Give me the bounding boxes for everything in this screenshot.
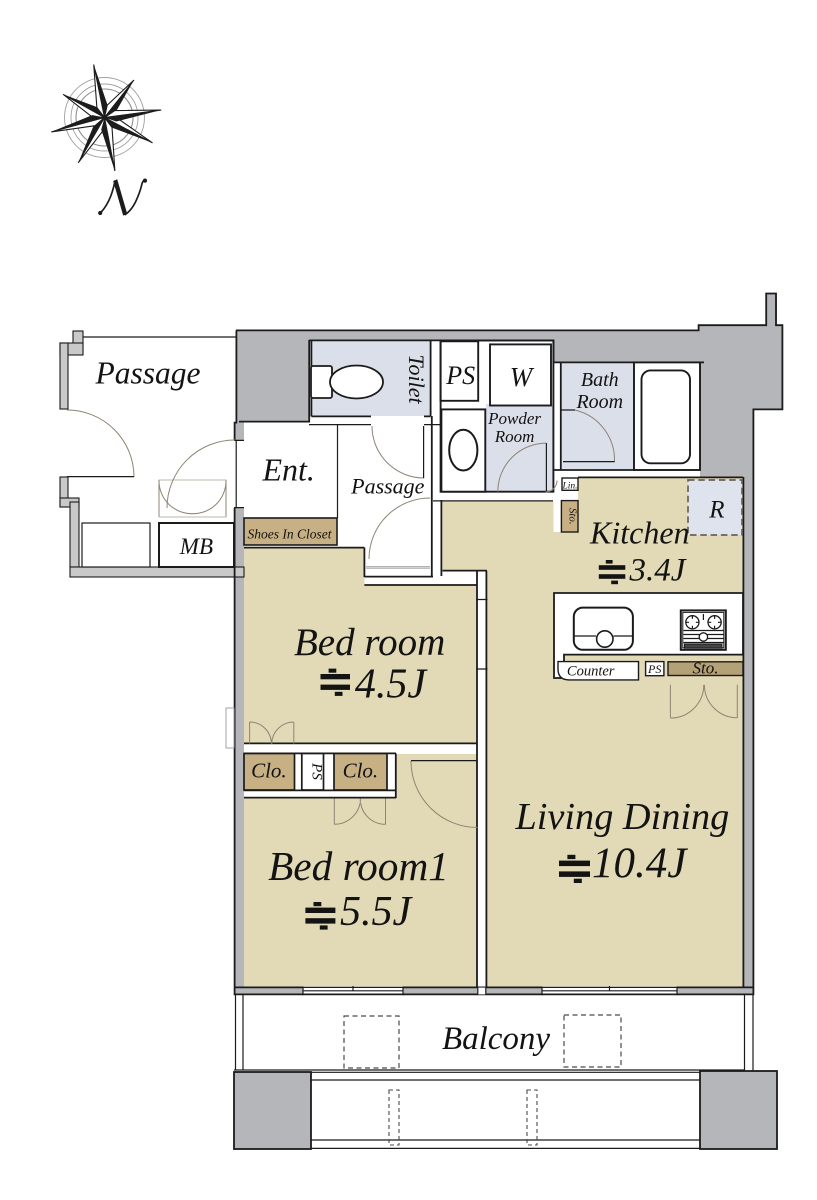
svg-text:Room: Room xyxy=(575,391,623,413)
svg-text:Clo.: Clo. xyxy=(251,759,287,783)
svg-text:Balcony: Balcony xyxy=(442,1021,550,1057)
svg-text:4.5J: 4.5J xyxy=(355,661,429,707)
svg-text:PS: PS xyxy=(445,361,475,390)
svg-text:W: W xyxy=(510,362,535,392)
svg-text:10.4J: 10.4J xyxy=(592,840,688,887)
svg-text:Living Dining: Living Dining xyxy=(514,796,729,838)
svg-text:5.5J: 5.5J xyxy=(340,889,414,935)
svg-text:3.4J: 3.4J xyxy=(629,553,687,589)
svg-text:Clo.: Clo. xyxy=(343,759,379,783)
svg-text:Bed room: Bed room xyxy=(294,621,445,664)
svg-text:Kitchen: Kitchen xyxy=(589,515,690,551)
svg-text:Powder: Powder xyxy=(487,409,541,428)
svg-text:Bath: Bath xyxy=(581,369,619,391)
svg-text:Toilet: Toilet xyxy=(404,354,429,404)
svg-text:Sto.: Sto. xyxy=(567,508,579,525)
svg-text:PS: PS xyxy=(647,662,661,676)
svg-text:R: R xyxy=(708,497,724,524)
svg-text:Counter: Counter xyxy=(567,664,615,680)
svg-text:MB: MB xyxy=(179,534,213,559)
svg-text:PS: PS xyxy=(309,762,325,780)
svg-text:Lin.: Lin. xyxy=(561,482,577,492)
svg-text:Sto.: Sto. xyxy=(693,659,719,678)
svg-text:Bed room1: Bed room1 xyxy=(268,843,449,889)
svg-text:Room: Room xyxy=(494,427,535,446)
svg-text:Passage: Passage xyxy=(350,474,425,499)
svg-text:Shoes In Closet: Shoes In Closet xyxy=(248,527,333,542)
svg-text:Passage: Passage xyxy=(95,356,201,391)
svg-text:Ent.: Ent. xyxy=(261,452,314,488)
